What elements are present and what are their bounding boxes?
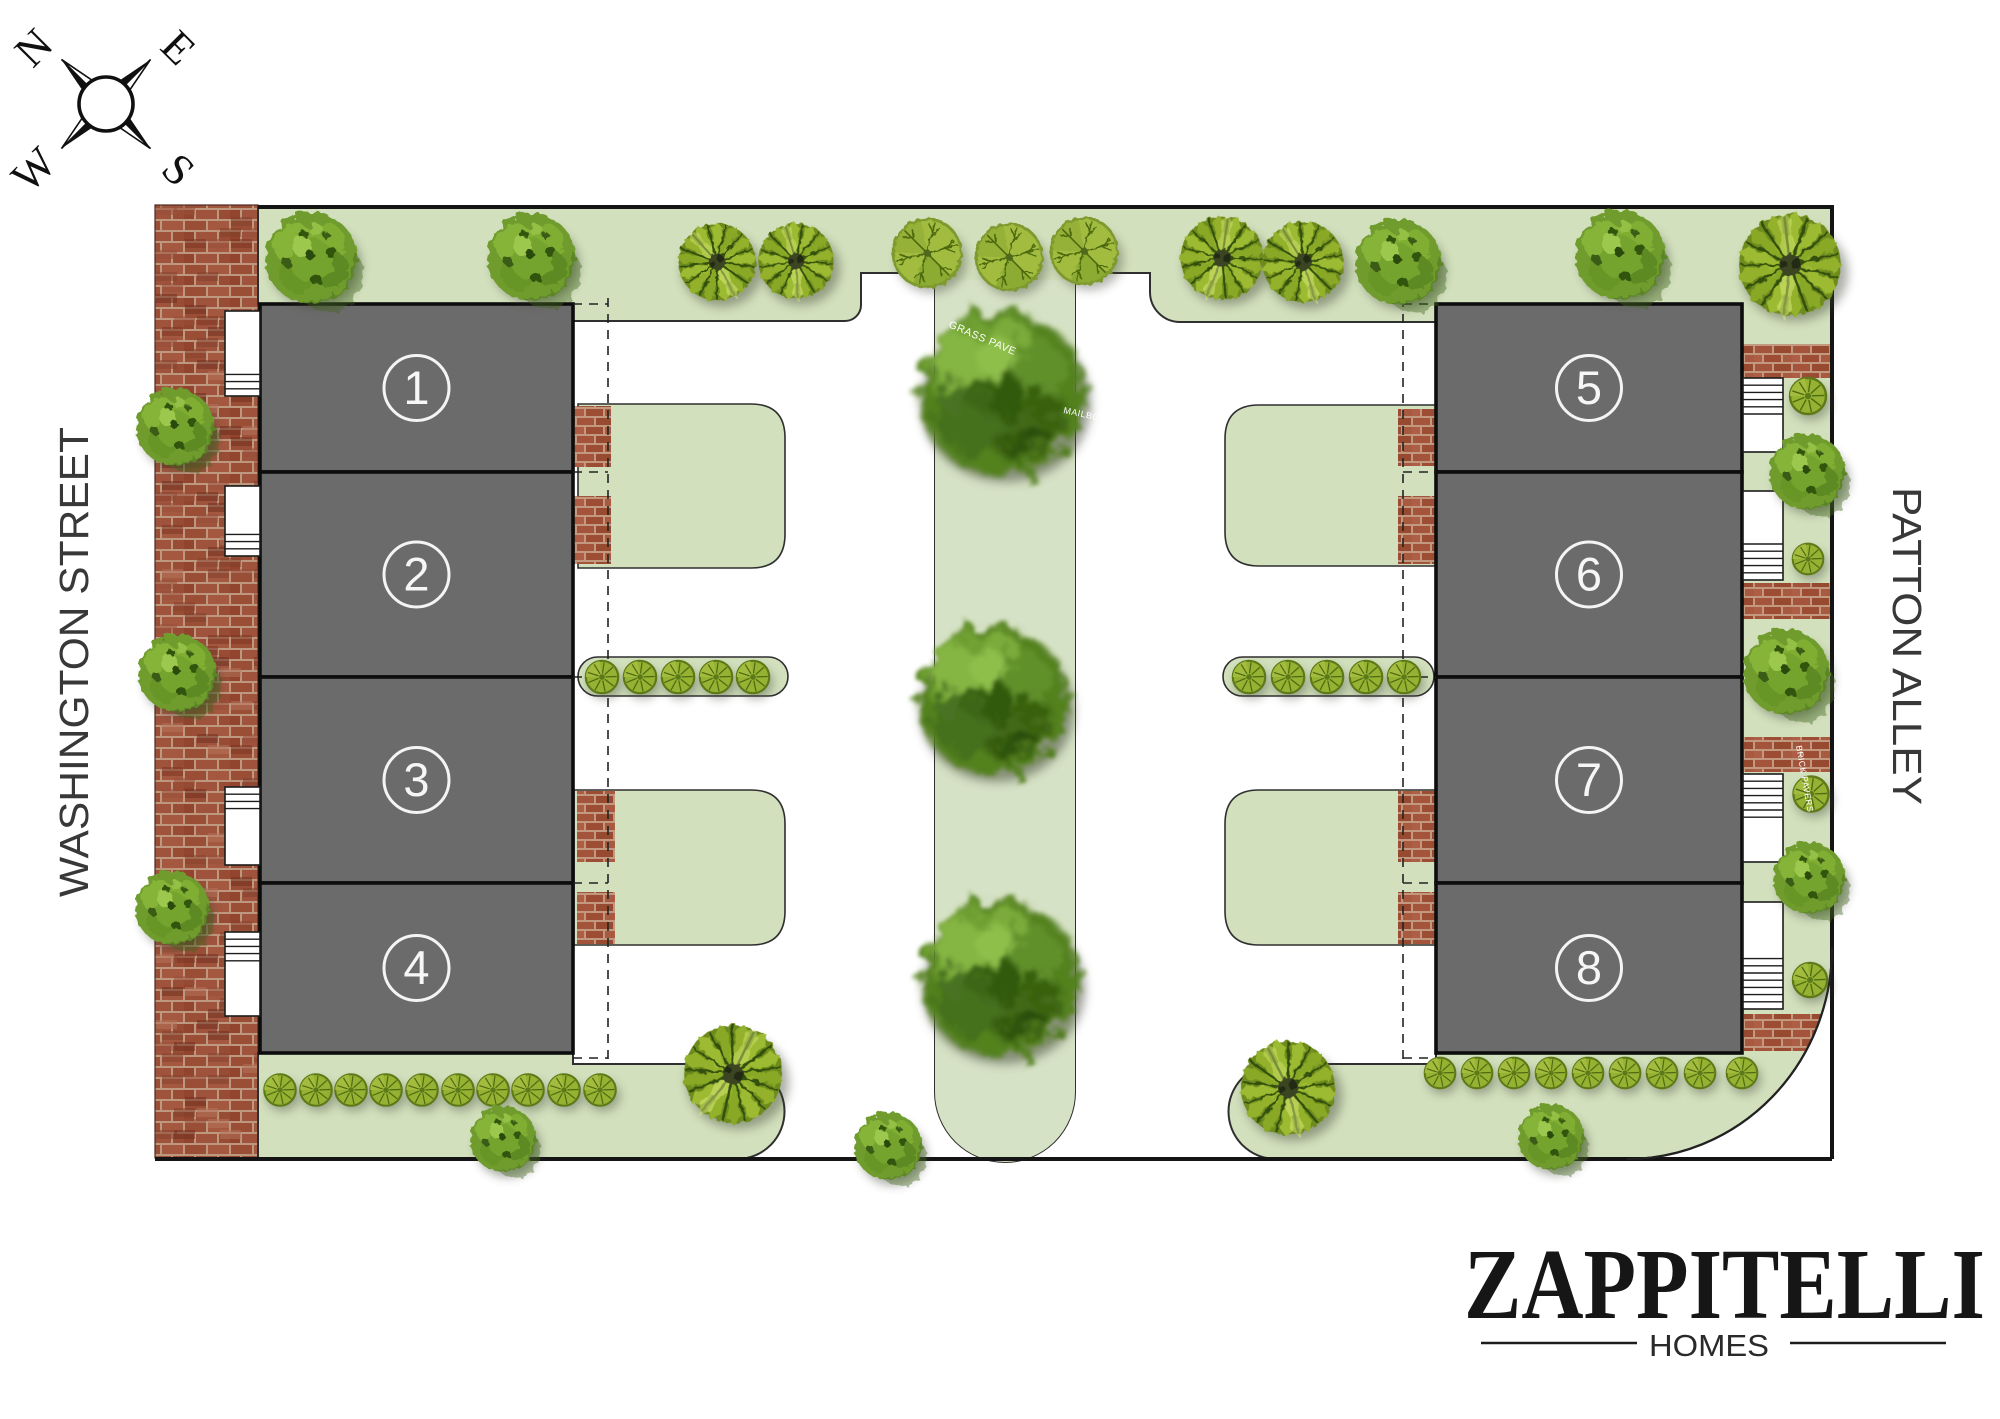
svg-text:1: 1 <box>403 361 429 414</box>
svg-text:6: 6 <box>1576 548 1602 601</box>
svg-text:PATTON ALLEY: PATTON ALLEY <box>1884 487 1930 805</box>
svg-text:8: 8 <box>1576 941 1602 994</box>
svg-text:2: 2 <box>403 548 429 601</box>
svg-text:ZAPPITELLI: ZAPPITELLI <box>1464 1228 1985 1340</box>
svg-text:7: 7 <box>1576 753 1602 806</box>
svg-text:HOMES: HOMES <box>1649 1328 1769 1363</box>
svg-text:5: 5 <box>1576 361 1602 414</box>
svg-text:WASHINGTON STREET: WASHINGTON STREET <box>51 427 97 897</box>
svg-text:3: 3 <box>403 753 429 806</box>
svg-text:4: 4 <box>403 941 429 994</box>
